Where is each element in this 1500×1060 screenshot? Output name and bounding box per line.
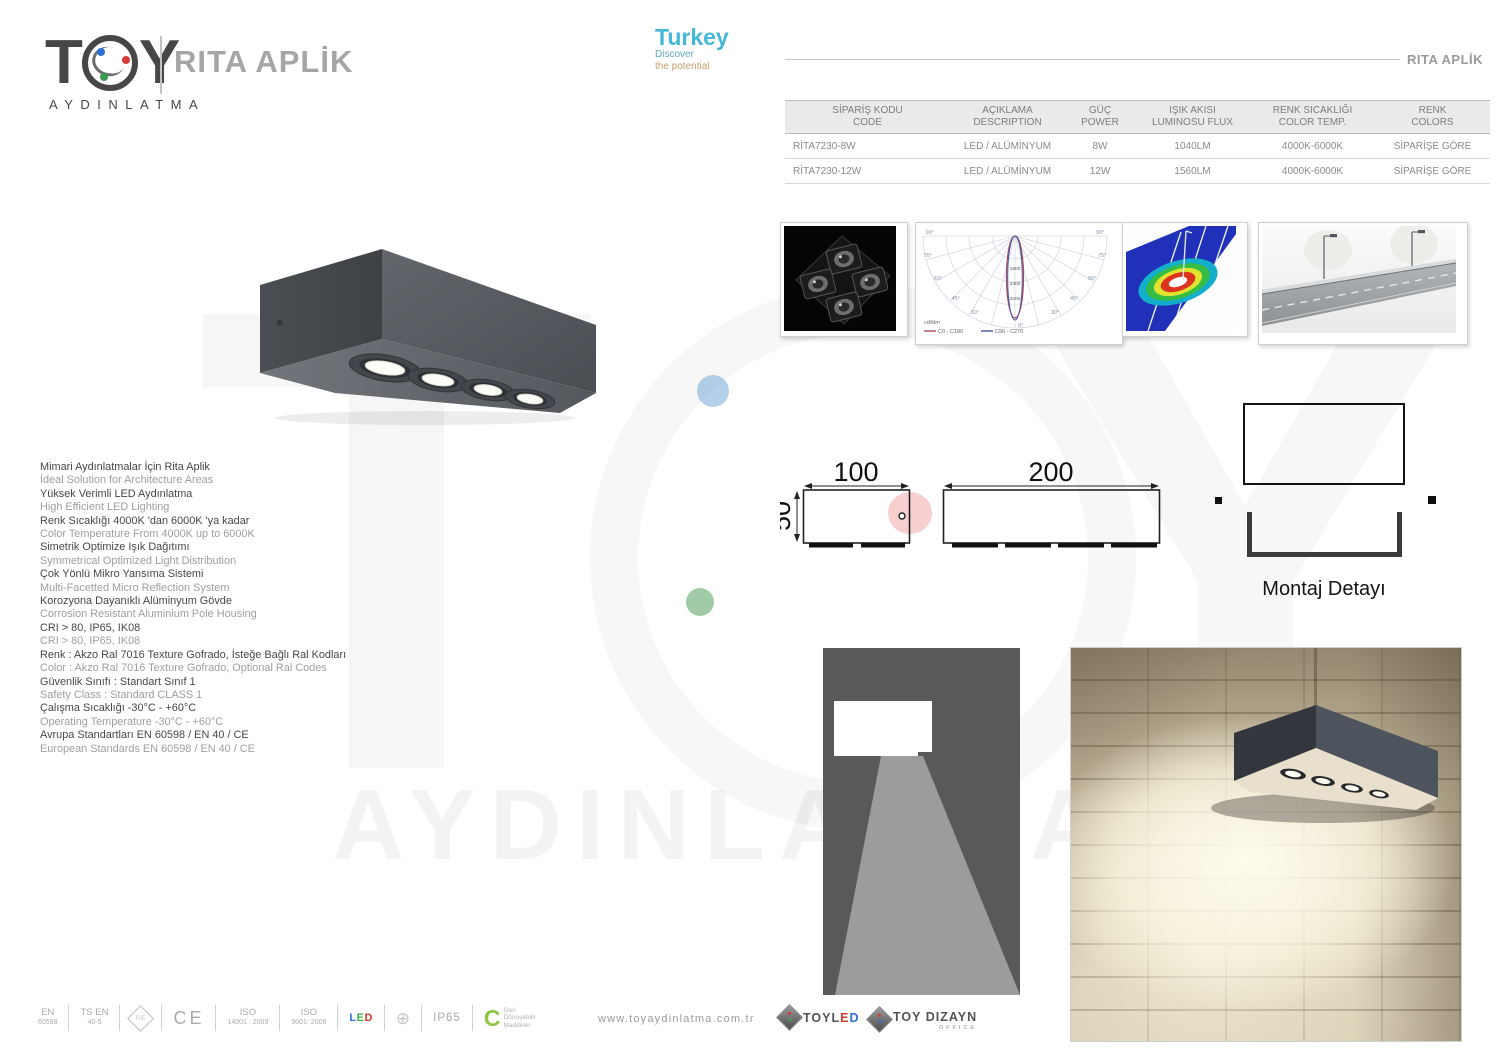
svg-text:60°: 60°: [934, 276, 942, 282]
led-lens-photo: [780, 222, 908, 337]
turkey-logo-title: Turkey: [655, 26, 729, 49]
tse-icon: TSE: [128, 1005, 155, 1032]
col-order-code: SİPARİŞ KODUCODE: [785, 101, 950, 133]
divider: [161, 1005, 162, 1031]
luminaire-symbol: [834, 701, 932, 752]
feature-line: Safety Class : Standard CLASS 1: [40, 689, 346, 702]
watermark-green-dot: [686, 588, 714, 616]
feature-line: Color : Akzo Ral 7016 Texture Gofrado, O…: [40, 662, 346, 675]
globe-icon: [82, 35, 138, 91]
feature-line: Güvenlik Sınıfı : Standart Sınıf 1: [40, 676, 346, 689]
globe-blue-dot: [97, 48, 105, 56]
col-power: GÜÇPOWER: [1065, 101, 1135, 133]
svg-text:30°: 30°: [1051, 310, 1059, 316]
logo-letter-t: T: [45, 32, 81, 94]
turkey-tagline-2: the potential: [655, 61, 729, 73]
polar-unit-label: cd/klm: [924, 320, 940, 326]
legend-c0: C0 - C180: [938, 329, 963, 335]
dim-height: 50: [780, 501, 796, 531]
ground-icon: ⊕: [396, 1010, 410, 1027]
feature-line: Color Temperature From 4000K up to 6000K: [40, 528, 346, 541]
ce-mark: CE: [173, 1008, 204, 1029]
divider: [215, 1005, 216, 1031]
cert-iso9001: ISO9001: 2008: [291, 1008, 326, 1028]
header-divider: [160, 36, 162, 94]
polar-chart: 90° 75° 60° 45° 30° 90° 75° 60° 45° 30° …: [919, 226, 1111, 339]
recycle-icon: C: [484, 1008, 501, 1029]
svg-text:45°: 45°: [1070, 296, 1078, 302]
mounting-body-outline: [1243, 403, 1405, 485]
feature-line: CRI > 80, IP65, IK08: [40, 635, 346, 648]
feature-line: Mimari Aydınlatmalar İçin Rita Aplik: [40, 461, 346, 474]
led-lens-image: [784, 226, 896, 331]
svg-text:60°: 60°: [1088, 276, 1096, 282]
svg-text:1600: 1600: [1010, 266, 1021, 272]
divider: [119, 1005, 120, 1031]
dimension-drawings: 100 50 200: [780, 455, 1170, 565]
feature-line: Çok Yönlü Mikro Yansıma Sistemi: [40, 568, 346, 581]
beam-diagram: [823, 648, 1020, 995]
feature-line: CRI > 80, IP65, IK08: [40, 622, 346, 635]
svg-text:75°: 75°: [1098, 253, 1106, 259]
col-description: AÇIKLAMADESCRIPTION: [950, 101, 1065, 133]
divider: [384, 1005, 385, 1031]
wall-luminaire: [1071, 648, 1461, 1041]
spec-table-header: SİPARİŞ KODUCODE AÇIKLAMADESCRIPTION GÜÇ…: [785, 100, 1490, 134]
feature-line: Corrosion Resistant Aluminium Pole Housi…: [40, 608, 346, 621]
feature-line: Yüksek Verimli LED Aydınlatma: [40, 488, 346, 501]
col-luminous-flux: IŞIK AKISILUMINOSU FLUX: [1135, 101, 1250, 133]
feature-line: High Efficient LED Lighting: [40, 501, 346, 514]
feature-line: Renk Sıcaklığı 4000K 'dan 6000K 'ya kada…: [40, 515, 346, 528]
photometric-diagram: 90° 75° 60° 45° 30° 90° 75° 60° 45° 30° …: [915, 222, 1123, 345]
svg-text:75°: 75°: [924, 253, 932, 259]
globe-green-dot: [100, 73, 108, 81]
feature-line: İdeal Solution for Architecture Areas: [40, 474, 346, 487]
toydizayn-diamond-icon: [866, 1006, 893, 1033]
ip65-badge: IP65: [433, 1012, 461, 1024]
globe-red-dot: [122, 56, 130, 64]
header-rule: [785, 59, 1400, 60]
watermark-blue-dot: [697, 375, 729, 407]
luminaire-symbol-base: [834, 752, 918, 756]
svg-text:45°: 45°: [952, 296, 960, 302]
feature-line: Çalışma Sıcaklığı -30°C - +60°C: [40, 702, 346, 715]
mounting-screw-left: [1215, 497, 1222, 504]
logo-letter-y: Y: [139, 32, 178, 94]
dim-width-small: 100: [833, 457, 878, 487]
feature-line: Simetrik Optimize Işık Dağıtımı: [40, 541, 346, 554]
feature-line: Avrupa Standartları EN 60598 / EN 40 / C…: [40, 729, 346, 742]
table-row: RİTA7230-8W LED / ALÜMİNYUM 8W 1040LM 40…: [785, 134, 1490, 159]
certification-strip: EN60598 TS EN40-5 TSE CE ISO14001 : 2009…: [38, 1005, 536, 1031]
turkey-tagline-1: Discover: [655, 49, 729, 61]
divider: [472, 1005, 473, 1031]
website-url: www.toyaydinlatma.com.tr: [598, 1013, 755, 1025]
feature-line: European Standards EN 60598 / EN 40 / CE: [40, 743, 346, 756]
svg-text:30°: 30°: [971, 310, 979, 316]
mounting-detail-label: Montaj Detayı: [1243, 578, 1405, 601]
divider: [68, 1005, 69, 1031]
recyclable-badge: C GeriDönüşebilirMaddeler: [484, 1007, 536, 1030]
toydizayn-logo: TOY DIZAYNOFFICE: [870, 1008, 977, 1031]
illuminance-heatmap: [1122, 222, 1248, 337]
application-photo: [1258, 222, 1468, 345]
toyled-logo: TOYLED: [780, 1008, 859, 1027]
feature-line: Operating Temperature -30°C - +60°C: [40, 716, 346, 729]
col-colors: RENKCOLORS: [1375, 101, 1490, 133]
feature-line: Symmetrical Optimized Light Distribution: [40, 555, 346, 568]
svg-text:90°: 90°: [1096, 230, 1104, 236]
svg-text:2400: 2400: [1010, 281, 1021, 287]
heatmap-image: [1126, 226, 1236, 331]
mounting-bracket: [1247, 512, 1402, 557]
feature-line: Multi-Facetted Micro Reflection System: [40, 582, 346, 595]
svg-text:90°: 90°: [926, 230, 934, 236]
turkey-logo: Turkey Discover the potential: [655, 26, 729, 72]
feature-list: Mimari Aydınlatmalar İçin Rita Aplik İde…: [40, 461, 346, 756]
toyled-diamond-icon: [776, 1004, 803, 1031]
cert-en60598: EN60598: [38, 1008, 57, 1028]
led-badge: LED: [349, 1012, 373, 1024]
cert-tsen40: TS EN40-5: [80, 1008, 108, 1028]
divider: [337, 1005, 338, 1031]
dim-width-large: 200: [1028, 457, 1073, 487]
divider: [279, 1005, 280, 1031]
divider: [421, 1005, 422, 1031]
product-render: [240, 235, 620, 430]
street-render: [1262, 226, 1456, 333]
cert-iso14001: ISO14001 : 2009: [227, 1008, 268, 1028]
datasheet-page: T Y AYDINLATMA T Y AYDINLATMA RITA APLİK…: [0, 0, 1500, 1060]
feature-line: Korozyona Dayanıklı Alüminyum Gövde: [40, 595, 346, 608]
spec-table: SİPARİŞ KODUCODE AÇIKLAMADESCRIPTION GÜÇ…: [785, 100, 1490, 184]
feature-line: Renk : Akzo Ral 7016 Texture Gofrado, İs…: [40, 649, 346, 662]
col-color-temp: RENK SICAKLIĞICOLOR TEMP.: [1250, 101, 1375, 133]
table-row: RİTA7230-12W LED / ALÜMİNYUM 12W 1560LM …: [785, 159, 1490, 184]
header-product-label: RITA APLİK: [1407, 52, 1483, 67]
logo-subtitle: AYDINLATMA: [45, 97, 205, 112]
page-title: RITA APLİK: [174, 44, 353, 80]
svg-text:3200: 3200: [1010, 296, 1021, 302]
legend-c90: C90 - C270: [995, 329, 1023, 335]
wall-application-photo: [1070, 647, 1462, 1042]
mounting-screw-right: [1428, 496, 1436, 504]
